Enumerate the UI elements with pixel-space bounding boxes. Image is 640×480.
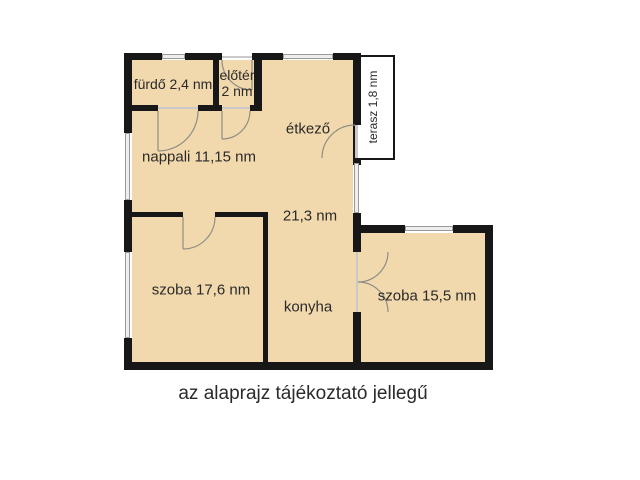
- floor-plan: fürdő 2,4 nm előtér 2 nm étkező terasz 1…: [0, 0, 640, 480]
- room-label-eloter: előtér 2 nm: [219, 67, 254, 99]
- door-arc: [358, 252, 388, 282]
- room-label-konyha: konyha: [284, 298, 332, 315]
- door-swing-layer: [0, 0, 640, 480]
- door-arc: [222, 111, 250, 139]
- room-label-szoba1: szoba 17,6 nm: [152, 281, 250, 298]
- caption: az alaprajz tájékoztató jellegű: [178, 383, 427, 405]
- door-arc: [158, 111, 198, 151]
- room-label-nappali: nappali 11,15 nm: [142, 148, 256, 165]
- room-label-furdo: fürdő 2,4 nm: [134, 76, 213, 92]
- door-arc: [183, 217, 215, 249]
- room-label-eloter-line2: 2 nm: [219, 83, 254, 99]
- room-label-etkezo: étkező: [286, 120, 330, 137]
- room-label-terasz: terasz 1,8 nm: [367, 71, 381, 144]
- room-label-szoba2: szoba 15,5 nm: [378, 287, 476, 304]
- room-label-center: 21,3 nm: [283, 207, 337, 224]
- room-label-eloter-line1: előtér: [219, 67, 254, 83]
